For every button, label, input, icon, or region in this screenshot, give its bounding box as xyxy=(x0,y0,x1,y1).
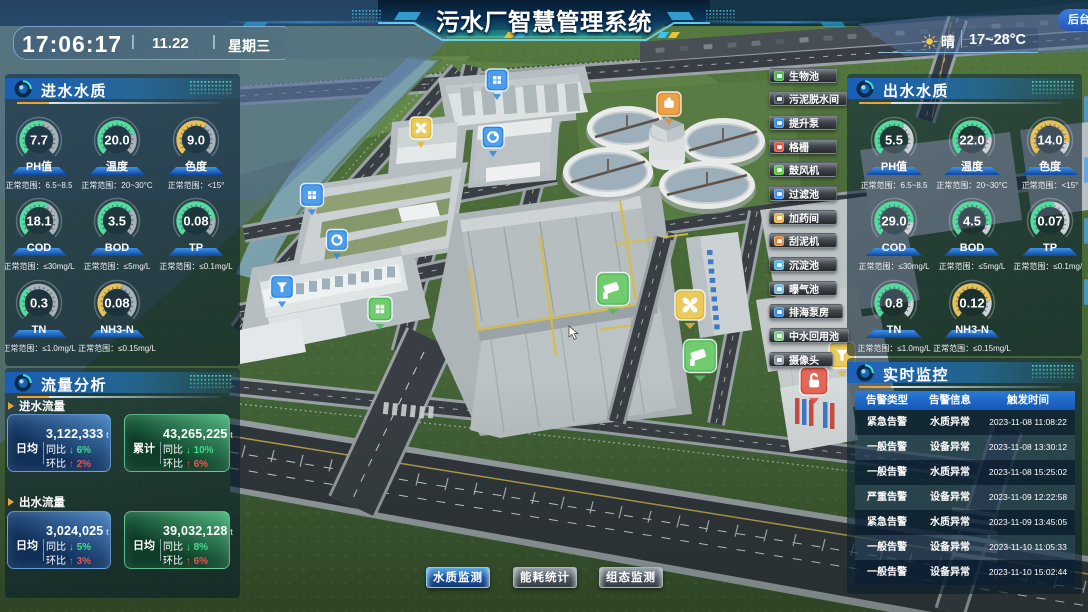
svg-text:温度: 温度 xyxy=(961,159,984,173)
svg-text:0.3: 0.3 xyxy=(30,296,48,311)
svg-text:PH值: PH值 xyxy=(881,159,907,173)
svg-text:BOD: BOD xyxy=(105,242,130,254)
svg-text:正常范围：≤1.0mg/L: 正常范围：≤1.0mg/L xyxy=(5,343,76,353)
svg-text:14.0: 14.0 xyxy=(1037,133,1062,148)
svg-text:正常范围：20~30°C: 正常范围：20~30°C xyxy=(936,180,1008,190)
svg-text:正常范围：6.5~8.5: 正常范围：6.5~8.5 xyxy=(6,180,73,190)
svg-text:NH3-N: NH3-N xyxy=(955,324,989,336)
svg-text:色度: 色度 xyxy=(1039,159,1062,173)
svg-text:5.5: 5.5 xyxy=(885,133,903,148)
svg-text:正常范围：20~30°C: 正常范围：20~30°C xyxy=(81,180,153,190)
svg-text:20.0: 20.0 xyxy=(104,133,129,148)
svg-text:正常范围：≤30mg/L: 正常范围：≤30mg/L xyxy=(858,261,930,271)
svg-text:正常范围：<15°: 正常范围：<15° xyxy=(1022,180,1079,190)
svg-text:TN: TN xyxy=(32,324,47,336)
svg-text:正常范围：≤1.0mg/L: 正常范围：≤1.0mg/L xyxy=(857,343,931,353)
svg-text:4.5: 4.5 xyxy=(963,214,981,229)
svg-text:7.7: 7.7 xyxy=(30,133,48,148)
svg-text:22.0: 22.0 xyxy=(959,133,984,148)
svg-text:29.0: 29.0 xyxy=(881,214,906,229)
svg-text:正常范围：<15°: 正常范围：<15° xyxy=(168,180,225,190)
svg-text:正常范围：≤0.1mg/L: 正常范围：≤0.1mg/L xyxy=(159,261,233,271)
svg-text:正常范围：≤5mg/L: 正常范围：≤5mg/L xyxy=(84,261,151,271)
svg-text:0.12: 0.12 xyxy=(959,296,984,311)
svg-text:0.08: 0.08 xyxy=(104,296,129,311)
svg-text:9.0: 9.0 xyxy=(187,133,205,148)
svg-text:温度: 温度 xyxy=(106,159,129,173)
svg-text:TN: TN xyxy=(887,324,902,336)
svg-text:BOD: BOD xyxy=(960,242,985,254)
svg-text:正常范围：≤30mg/L: 正常范围：≤30mg/L xyxy=(5,261,75,271)
svg-text:COD: COD xyxy=(882,242,907,254)
svg-text:0.07: 0.07 xyxy=(1037,214,1062,229)
svg-text:3.5: 3.5 xyxy=(108,214,126,229)
svg-text:18.1: 18.1 xyxy=(26,214,51,229)
svg-text:色度: 色度 xyxy=(185,159,208,173)
svg-text:TP: TP xyxy=(189,242,203,254)
svg-text:0.08: 0.08 xyxy=(183,214,208,229)
svg-text:PH值: PH值 xyxy=(26,159,52,173)
svg-text:正常范围：≤5mg/L: 正常范围：≤5mg/L xyxy=(939,261,1006,271)
svg-text:正常范围：≤0.15mg/L: 正常范围：≤0.15mg/L xyxy=(78,343,156,353)
svg-text:COD: COD xyxy=(27,242,52,254)
svg-text:正常范围：≤0.1mg/L: 正常范围：≤0.1mg/L xyxy=(1013,261,1082,271)
svg-text:0.8: 0.8 xyxy=(885,296,903,311)
svg-text:TP: TP xyxy=(1043,242,1057,254)
svg-text:正常范围：≤0.15mg/L: 正常范围：≤0.15mg/L xyxy=(933,343,1011,353)
svg-text:正常范围：6.5~8.5: 正常范围：6.5~8.5 xyxy=(861,180,928,190)
svg-text:NH3-N: NH3-N xyxy=(100,324,134,336)
